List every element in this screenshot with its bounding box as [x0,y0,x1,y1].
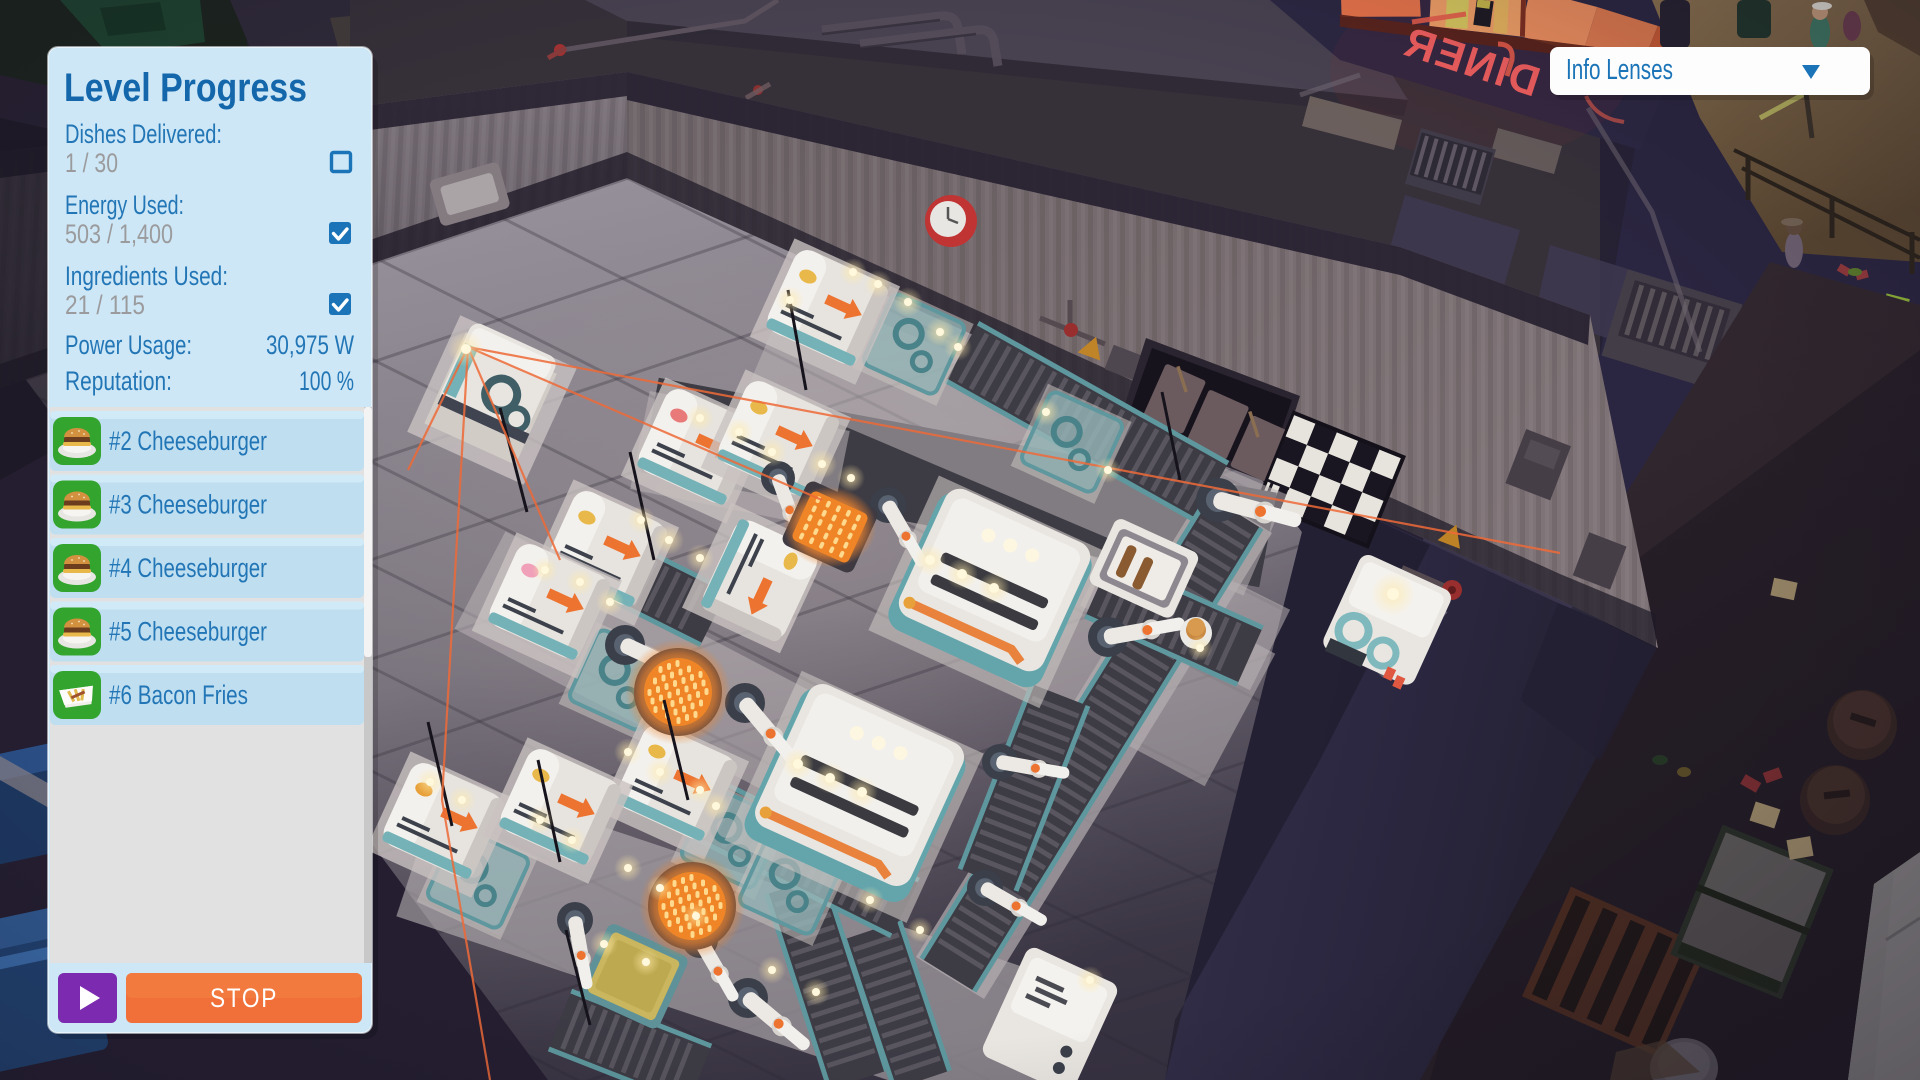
svg-text:Ingredients Used:: Ingredients Used: [65,261,228,291]
svg-text:100 %: 100 % [299,366,354,396]
svg-text:Level Progress: Level Progress [64,66,307,110]
svg-text:Power Usage:: Power Usage: [65,330,192,360]
svg-text:STOP: STOP [210,983,278,1013]
svg-text:#4 Cheeseburger: #4 Cheeseburger [109,553,267,583]
svg-text:30,975 W: 30,975 W [266,330,354,360]
svg-text:503 / 1,400: 503 / 1,400 [65,219,173,249]
svg-text:#2 Cheeseburger: #2 Cheeseburger [109,426,267,456]
svg-text:Reputation:: Reputation: [65,366,172,396]
svg-text:Dishes Delivered:: Dishes Delivered: [65,119,222,149]
svg-text:#6 Bacon Fries: #6 Bacon Fries [109,680,248,710]
svg-text:21 / 115: 21 / 115 [65,290,145,320]
svg-text:Energy Used:: Energy Used: [65,190,184,220]
svg-text:#3 Cheeseburger: #3 Cheeseburger [109,490,267,520]
svg-text:Info Lenses: Info Lenses [1566,54,1673,86]
svg-text:1 / 30: 1 / 30 [65,148,118,178]
svg-text:#5 Cheeseburger: #5 Cheeseburger [109,617,267,647]
